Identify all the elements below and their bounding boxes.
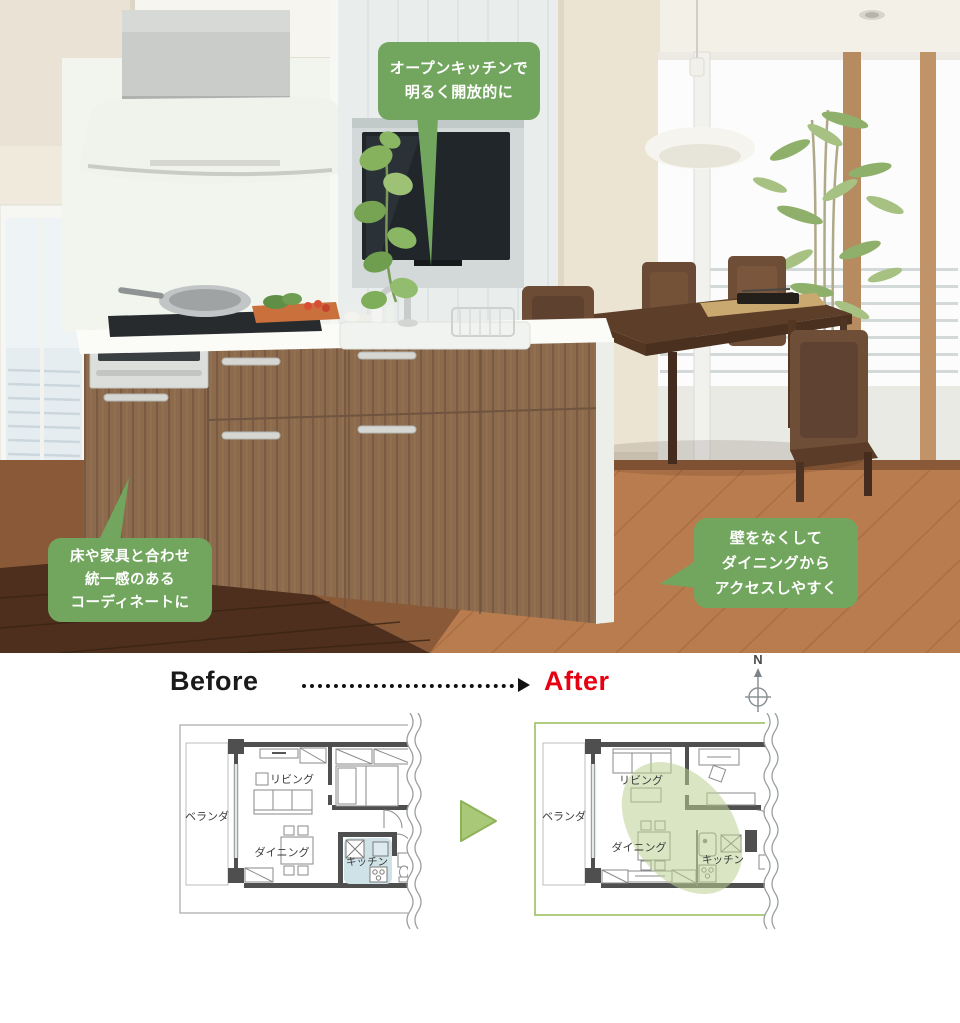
before-label: Before [170, 666, 259, 697]
callout-coordinate: 床や家具と合わせ 統一感のある コーディネートに [48, 538, 212, 622]
after-kitchen-label: キッチン [702, 854, 744, 866]
brochure-page: { "photo": { "description": "open kitche… [0, 0, 960, 1023]
after-label: After [544, 666, 610, 697]
before-kitchen-label: キッチン [346, 856, 388, 868]
leader-arrow-icon [518, 678, 530, 692]
before-living-label: リビング [270, 772, 314, 786]
before-after-triangle-icon [458, 798, 500, 844]
kitchen-photo: オープンキッチンで 明るく開放的に 床や家具と合わせ 統一感のある コーディネー… [0, 0, 960, 653]
floorplan-after: ベランダ リビング ダイニング キッチン [527, 713, 783, 929]
callout-open-kitchen: オープンキッチンで 明るく開放的に [378, 42, 540, 120]
tv-stand [414, 260, 462, 266]
before-veranda-label: ベランダ [185, 809, 229, 823]
after-dining-label: ダイニング [612, 840, 667, 854]
dotted-leader [302, 684, 514, 688]
tray [737, 293, 799, 304]
after-veranda-label: ベランダ [542, 809, 586, 823]
before-dining-label: ダイニング [255, 845, 310, 859]
floorplan-before: ベランダ リビング ダイニング キッチン [170, 713, 426, 929]
after-living-label: リビング [619, 773, 663, 787]
callout-wall-access: 壁をなくして ダイニングから アクセスしやすく [694, 518, 858, 608]
compass-north-label: N [753, 652, 762, 667]
